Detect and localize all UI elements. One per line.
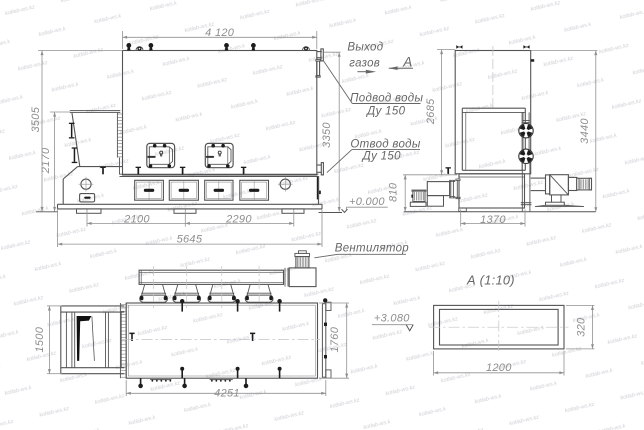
svg-text:3350: 3350 — [321, 122, 333, 148]
svg-text:1760: 1760 — [329, 326, 341, 352]
svg-text:2100: 2100 — [123, 213, 150, 225]
svg-text:Ду 150: Ду 150 — [365, 106, 405, 118]
svg-text:1500: 1500 — [34, 326, 46, 352]
svg-text:А: А — [402, 55, 412, 70]
svg-text:А (1:10): А (1:10) — [466, 273, 515, 288]
svg-text:Отвод воды: Отвод воды — [350, 139, 420, 151]
svg-text:320: 320 — [575, 317, 587, 337]
svg-text:Выход: Выход — [347, 41, 383, 53]
svg-text:2685: 2685 — [425, 98, 437, 125]
svg-text:Ду 150: Ду 150 — [361, 150, 401, 162]
svg-text:Вентилятор: Вентилятор — [335, 243, 410, 255]
svg-text:Подвод воды: Подвод воды — [350, 92, 423, 104]
svg-text:5645: 5645 — [177, 234, 203, 246]
svg-text:3505: 3505 — [30, 106, 42, 132]
svg-text:4 120: 4 120 — [205, 27, 235, 39]
svg-text:1370: 1370 — [480, 214, 506, 226]
svg-text:+3.080: +3.080 — [374, 312, 410, 324]
svg-text:+0.000: +0.000 — [349, 196, 385, 208]
svg-text:газов: газов — [349, 58, 380, 70]
svg-text:810: 810 — [387, 182, 399, 202]
svg-text:2290: 2290 — [225, 213, 252, 225]
svg-text:3440: 3440 — [579, 118, 591, 144]
svg-text:1200: 1200 — [486, 362, 512, 374]
svg-text:4251: 4251 — [214, 388, 240, 400]
